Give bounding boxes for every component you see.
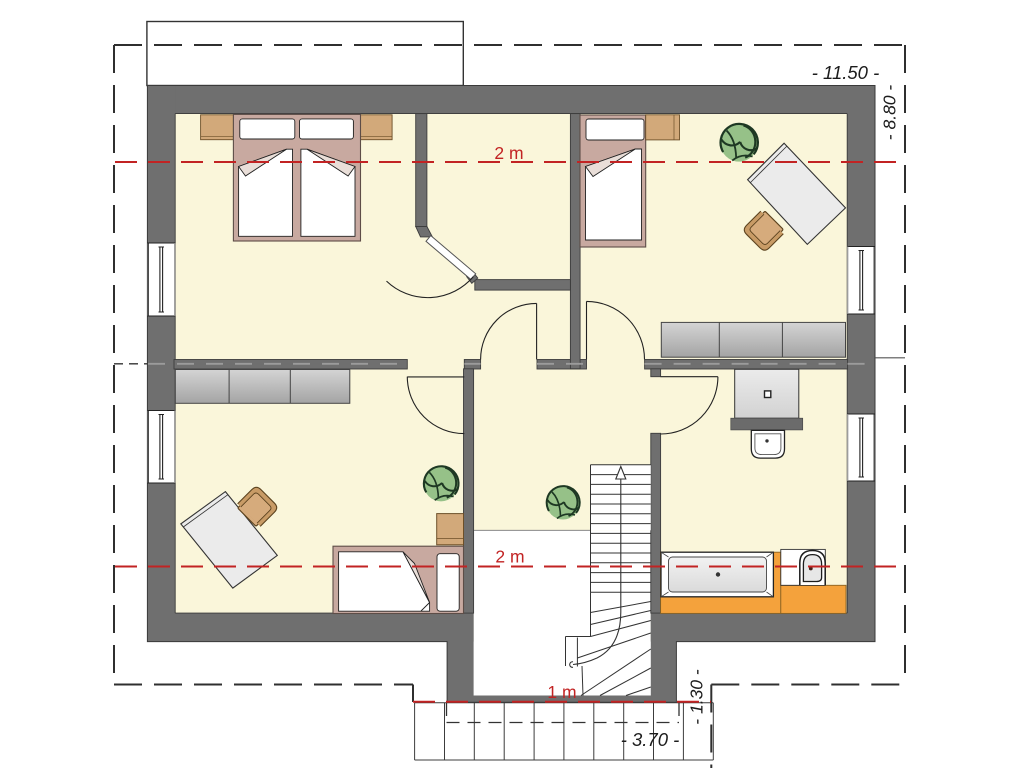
svg-text:- 3.70 -: - 3.70 - — [621, 729, 680, 750]
svg-text:1 m: 1 m — [547, 682, 576, 702]
svg-text:- 8.80 -: - 8.80 - — [880, 85, 900, 141]
svg-text:2 m: 2 m — [495, 547, 524, 567]
svg-text:2 m: 2 m — [494, 143, 523, 163]
svg-text:- 1.30 -: - 1.30 - — [687, 669, 707, 725]
svg-text:- 11.50 -: - 11.50 - — [812, 62, 880, 83]
